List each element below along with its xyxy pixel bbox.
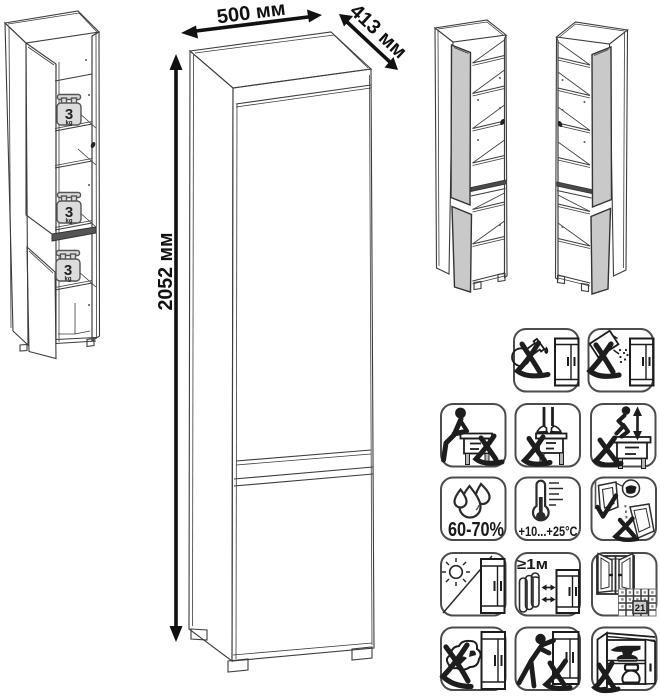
svg-text:2052 мм: 2052 мм (155, 233, 177, 311)
svg-text:kg: kg (65, 219, 72, 225)
svg-text:21: 21 (635, 603, 646, 614)
svg-text:60-70%: 60-70% (448, 519, 504, 541)
svg-text:kg: kg (65, 121, 72, 127)
svg-text:kg: kg (64, 277, 71, 283)
svg-text:+10...+25°С: +10...+25°С (519, 524, 578, 539)
svg-text:≥1м: ≥1м (517, 557, 548, 573)
